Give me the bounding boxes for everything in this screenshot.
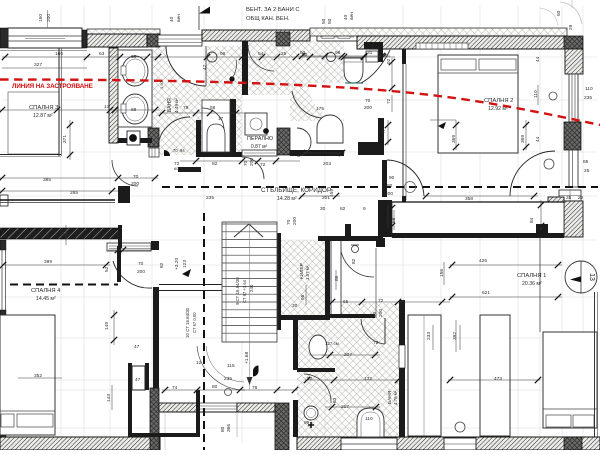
svg-text:110: 110: [533, 90, 539, 98]
svg-text:60: 60: [174, 166, 179, 171]
svg-text:50: 50: [327, 18, 333, 24]
svg-text:92: 92: [386, 58, 392, 64]
svg-text:54: 54: [258, 51, 264, 57]
svg-text:200: 200: [385, 191, 393, 197]
svg-text:ЛИНИЯ НА ЗАСТРОЯВАНЕ: ЛИНИЯ НА ЗАСТРОЯВАНЕ: [12, 83, 93, 90]
svg-text:160: 160: [38, 14, 44, 22]
svg-text:СПАЛНЯ 2: СПАЛНЯ 2: [484, 98, 513, 104]
svg-text:70: 70: [365, 98, 371, 104]
svg-text:+3.20: +3.20: [174, 258, 180, 270]
svg-text:ПЕРАЛНО: ПЕРАЛНО: [247, 136, 273, 142]
svg-text:10 СТ 16.84/30: 10 СТ 16.84/30: [185, 307, 190, 338]
svg-text:84: 84: [529, 217, 535, 223]
svg-text:200: 200: [292, 217, 298, 225]
svg-text:63: 63: [99, 51, 105, 57]
svg-text:12.92 м²: 12.92 м²: [488, 106, 508, 112]
svg-text:159: 159: [329, 189, 335, 197]
svg-text:СПАЛНЯ 1: СПАЛНЯ 1: [517, 273, 546, 279]
svg-text:50: 50: [321, 18, 327, 24]
svg-text:20.36 м²: 20.36 м²: [522, 281, 542, 287]
svg-text:371: 371: [62, 135, 68, 143]
svg-text:200: 200: [137, 269, 145, 275]
svg-text:203: 203: [323, 161, 331, 167]
svg-text:44: 44: [535, 136, 541, 142]
svg-text:17: 17: [218, 116, 224, 122]
svg-text:369: 369: [520, 135, 526, 143]
svg-text:1.57 м²: 1.57 м²: [305, 265, 310, 280]
svg-text:9 СТ 16.84/30: 9 СТ 16.84/30: [235, 277, 240, 305]
svg-text:ВЕНТ. ЗА 2 БАНИ С: ВЕНТ. ЗА 2 БАНИ С: [246, 7, 300, 13]
svg-text:115: 115: [227, 363, 235, 369]
svg-text:22: 22: [578, 195, 584, 201]
svg-text:385: 385: [43, 177, 51, 183]
svg-text:285: 285: [70, 190, 78, 196]
svg-text:4.49 м²: 4.49 м²: [174, 98, 179, 113]
svg-text:50: 50: [302, 52, 308, 58]
svg-text:74: 74: [172, 385, 178, 391]
svg-text:143: 143: [106, 394, 112, 402]
svg-text:90: 90: [389, 175, 395, 181]
svg-text:СТ 67 0.00: СТ 67 0.00: [192, 312, 197, 333]
svg-text:387: 387: [60, 229, 66, 237]
svg-text:70: 70: [243, 160, 249, 166]
svg-text:47: 47: [134, 344, 140, 350]
svg-text:12: 12: [196, 360, 202, 366]
svg-text:217: 217: [341, 404, 349, 410]
svg-text:14.45 м²: 14.45 м²: [36, 296, 56, 302]
svg-text:35: 35: [566, 195, 572, 201]
svg-text:200: 200: [378, 309, 384, 317]
svg-text:9: 9: [363, 206, 366, 212]
svg-text:94: 94: [180, 148, 185, 153]
svg-text:13: 13: [104, 104, 110, 110]
svg-text:вен: вен: [177, 14, 182, 22]
svg-text:82: 82: [351, 258, 357, 264]
svg-text:233: 233: [426, 332, 432, 340]
svg-text:85: 85: [583, 159, 589, 165]
svg-text:0.87 м²: 0.87 м²: [251, 144, 268, 150]
svg-text:72: 72: [373, 340, 379, 346]
svg-text:110: 110: [365, 416, 373, 422]
svg-text:70: 70: [173, 148, 178, 153]
svg-text:40: 40: [343, 14, 349, 20]
svg-text:+1.68: +1.68: [244, 352, 250, 364]
svg-text:25: 25: [584, 168, 590, 174]
svg-text:70: 70: [133, 174, 139, 180]
svg-text:82: 82: [212, 161, 218, 167]
svg-text:473: 473: [494, 376, 502, 382]
svg-text:1.50: 1.50: [159, 80, 164, 89]
svg-text:240: 240: [249, 284, 254, 292]
svg-text:369: 369: [451, 135, 457, 143]
svg-text:82: 82: [340, 206, 346, 212]
svg-text:30: 30: [292, 303, 298, 309]
svg-text:68: 68: [131, 54, 137, 60]
svg-text:98: 98: [220, 51, 226, 57]
svg-text:96: 96: [300, 294, 306, 300]
svg-text:200: 200: [131, 181, 139, 187]
svg-text:14.28 м²: 14.28 м²: [277, 196, 297, 202]
svg-text:358: 358: [465, 196, 473, 202]
svg-text:вен: вен: [350, 12, 355, 20]
svg-text:235: 235: [584, 95, 592, 101]
svg-text:63: 63: [332, 397, 338, 403]
svg-text:207: 207: [344, 352, 352, 358]
svg-text:127 см: 127 см: [325, 341, 339, 346]
svg-text:70: 70: [372, 311, 378, 317]
svg-text:200: 200: [249, 158, 255, 166]
svg-text:621: 621: [482, 290, 490, 296]
svg-text:47: 47: [135, 377, 141, 383]
svg-text:235: 235: [224, 376, 232, 382]
svg-text:30: 30: [320, 206, 326, 212]
svg-text:68: 68: [391, 217, 397, 223]
svg-text:13: 13: [588, 273, 595, 281]
svg-text:79: 79: [183, 105, 189, 111]
svg-text:98: 98: [335, 50, 341, 56]
svg-text:123: 123: [182, 260, 188, 268]
svg-text:31: 31: [367, 50, 373, 56]
svg-text:29: 29: [568, 24, 574, 30]
svg-text:ОБЩ КАН. ВЕН.: ОБЩ КАН. ВЕН.: [246, 16, 290, 22]
svg-text:72: 72: [378, 298, 384, 304]
svg-text:12.87 м²: 12.87 м²: [33, 113, 53, 119]
svg-text:156: 156: [439, 269, 445, 277]
svg-text:25: 25: [281, 51, 287, 57]
svg-text:86: 86: [334, 275, 340, 281]
svg-text:77: 77: [381, 128, 387, 134]
svg-text:352: 352: [34, 373, 42, 379]
svg-text:72: 72: [386, 98, 392, 104]
svg-text:42: 42: [202, 64, 208, 70]
svg-text:44: 44: [535, 56, 541, 62]
svg-text:СПАЛНЯ 4: СПАЛНЯ 4: [31, 288, 61, 294]
svg-text:76: 76: [252, 385, 258, 391]
svg-text:68: 68: [131, 107, 137, 113]
svg-text:366: 366: [226, 424, 232, 432]
svg-text:399: 399: [44, 259, 52, 265]
svg-text:200: 200: [364, 105, 372, 111]
svg-text:80: 80: [387, 183, 393, 189]
svg-text:110: 110: [585, 86, 593, 92]
svg-text:132: 132: [364, 376, 372, 382]
svg-text:70: 70: [286, 219, 292, 225]
svg-text:149: 149: [104, 322, 110, 330]
svg-text:СТ 67 +1.64: СТ 67 +1.64: [242, 279, 247, 303]
svg-text:99: 99: [304, 420, 310, 426]
svg-text:200: 200: [46, 14, 52, 22]
svg-text:235: 235: [206, 195, 214, 201]
svg-text:72: 72: [260, 162, 266, 168]
svg-text:65: 65: [343, 299, 349, 305]
svg-text:БАНЯ: БАНЯ: [167, 98, 173, 112]
svg-text:175: 175: [316, 106, 324, 112]
svg-text:82: 82: [159, 262, 165, 268]
svg-text:СТЪЛБИЩЕ, КОРИДОР: СТЪЛБИЩЕ, КОРИДОР: [261, 187, 331, 194]
svg-text:52: 52: [104, 266, 110, 272]
svg-text:426: 426: [479, 258, 487, 264]
svg-text:50: 50: [556, 10, 562, 16]
svg-text:58: 58: [210, 105, 216, 111]
svg-text:4.78 м²: 4.78 м²: [393, 390, 398, 405]
svg-text:70: 70: [138, 261, 144, 267]
svg-text:СПАЛНЯ 3: СПАЛНЯ 3: [29, 105, 58, 111]
svg-text:327: 327: [34, 62, 42, 68]
svg-text:160: 160: [55, 51, 63, 57]
svg-text:90: 90: [307, 376, 313, 382]
svg-text:80: 80: [220, 426, 226, 432]
svg-text:40: 40: [169, 16, 175, 22]
svg-text:392: 392: [452, 332, 458, 340]
svg-text:80: 80: [212, 384, 218, 390]
